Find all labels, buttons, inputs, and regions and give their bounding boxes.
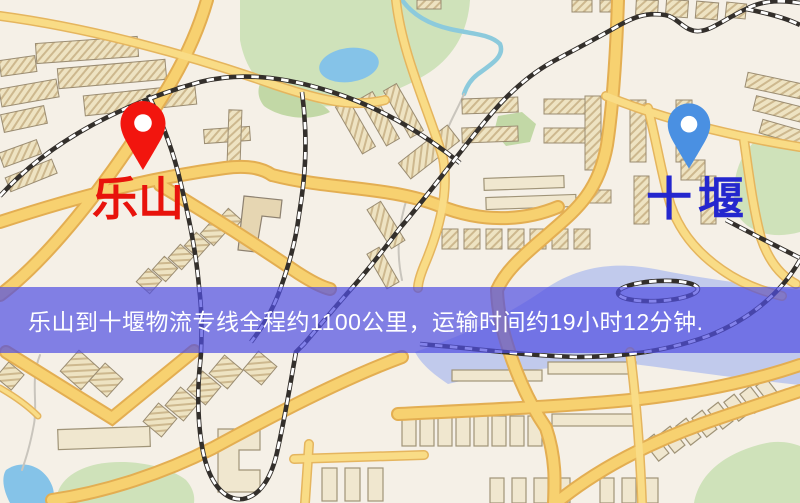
origin-pin-icon [119, 99, 167, 172]
route-info-banner: 乐山到十堰物流专线全程约1100公里，运输时间约19小时12分钟. [0, 287, 800, 353]
destination-pin-icon [666, 102, 712, 170]
destination-label: 十堰 [646, 176, 750, 222]
map-canvas [0, 0, 800, 503]
route-info-text: 乐山到十堰物流专线全程约1100公里，运输时间约19小时12分钟. [0, 303, 704, 337]
origin-label: 乐山 [92, 176, 184, 222]
route-map: 乐山到十堰物流专线全程约1100公里，运输时间约19小时12分钟. 乐山 十堰 [0, 0, 800, 503]
